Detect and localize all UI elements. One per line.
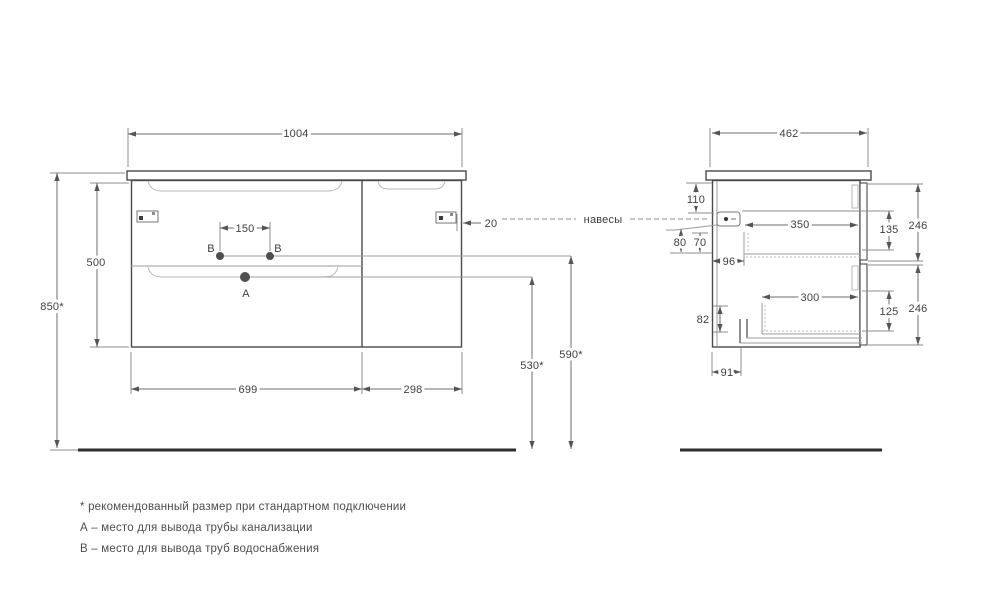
point-b-right (266, 252, 274, 260)
point-b-left (216, 252, 224, 260)
front-dimensions (50, 128, 571, 450)
label-point-b-left: В (207, 243, 215, 255)
dim-drain-height: 530* (520, 360, 544, 372)
front-cabinet-body (132, 181, 462, 348)
label-point-a: А (242, 288, 250, 300)
technical-drawing-page: 1004 850* 500 150 20 В В А 699 298 530* … (0, 0, 1000, 600)
bottom-front-handle-recess (852, 266, 858, 290)
dim-hanger-offset: 20 (485, 218, 498, 230)
side-dimensions (670, 128, 923, 376)
hanger-bracket-icon (666, 212, 740, 230)
dim-hanger-top: 110 (687, 194, 705, 206)
footnote-point-b: В – место для вывода труб водоснабжения (80, 539, 406, 560)
dim-siphon-offset: 91 (721, 367, 734, 379)
hanger-plate-right (436, 212, 456, 223)
floor-right (680, 450, 882, 463)
top-front-handle-recess (852, 185, 858, 208)
floor-hatching-left (120, 452, 447, 463)
top-drawer-front (860, 183, 867, 260)
door-handle-groove (378, 181, 445, 189)
dim-left-section: 699 (239, 384, 258, 396)
floor-hatching-right (690, 452, 875, 463)
dim-overall-width: 1004 (283, 128, 308, 140)
point-a (240, 272, 250, 282)
dim-faucet-spacing: 150 (236, 223, 255, 235)
footnote-point-a: А – место для вывода трубы канализации (80, 518, 406, 539)
top-drawer-box (744, 232, 860, 257)
dim-cabinet-height: 500 (87, 257, 106, 269)
bottom-drawer-front (860, 264, 867, 345)
dim-top-front-height: 246 (909, 220, 928, 232)
top-drawer-handle-groove (148, 181, 342, 191)
label-point-b-right: В (274, 243, 282, 255)
dim-82: 82 (697, 314, 710, 326)
dim-right-section: 298 (404, 384, 423, 396)
dim-125: 125 (880, 306, 899, 318)
hanger-plate-left (137, 211, 158, 222)
front-countertop (127, 171, 466, 180)
floor-left (78, 450, 516, 463)
dim-depth: 462 (780, 128, 799, 140)
dim-135: 135 (880, 224, 899, 236)
dim-70: 70 (694, 237, 707, 249)
dim-overall-height: 850* (40, 301, 64, 313)
dim-80: 80 (674, 237, 687, 249)
footnote-recommended-size: * рекомендованный размер при стандартном… (80, 497, 406, 518)
dim-water-height: 590* (559, 349, 583, 361)
front-view (127, 171, 571, 347)
dim-top-drawer-depth: 350 (791, 219, 810, 231)
dim-drawer-back-gap: 96 (723, 256, 736, 268)
dim-bottom-front-height: 246 (909, 303, 928, 315)
dim-bottom-drawer-depth: 300 (801, 292, 820, 304)
footnotes: * рекомендованный размер при стандартном… (80, 497, 406, 560)
label-hangers: навесы (584, 214, 623, 226)
bottom-drawer-box (762, 303, 860, 334)
side-countertop (706, 171, 871, 180)
